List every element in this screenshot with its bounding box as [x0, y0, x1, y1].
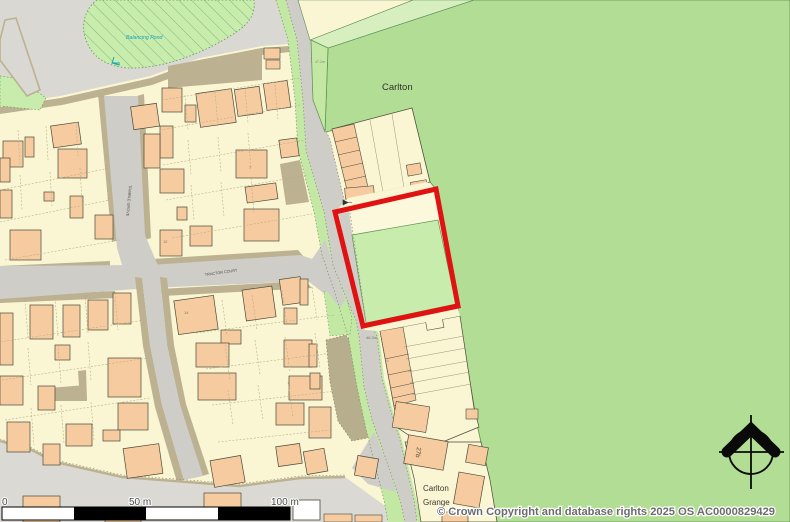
svg-text:50 m: 50 m: [129, 497, 151, 508]
svg-text:14: 14: [184, 310, 189, 315]
svg-text:27b: 27b: [414, 447, 422, 459]
svg-text:Carlton: Carlton: [382, 82, 413, 93]
svg-text:47.2m: 47.2m: [315, 60, 325, 64]
svg-text:Balancing Pond: Balancing Pond: [126, 35, 163, 41]
svg-text:0: 0: [2, 497, 8, 508]
svg-text:46.3m: 46.3m: [366, 335, 378, 340]
svg-text:100 m: 100 m: [271, 497, 299, 508]
svg-text:© Crown Copyright and database: © Crown Copyright and database rights 20…: [437, 506, 775, 518]
svg-text:12: 12: [163, 239, 168, 244]
svg-text:Carlton: Carlton: [423, 484, 449, 493]
